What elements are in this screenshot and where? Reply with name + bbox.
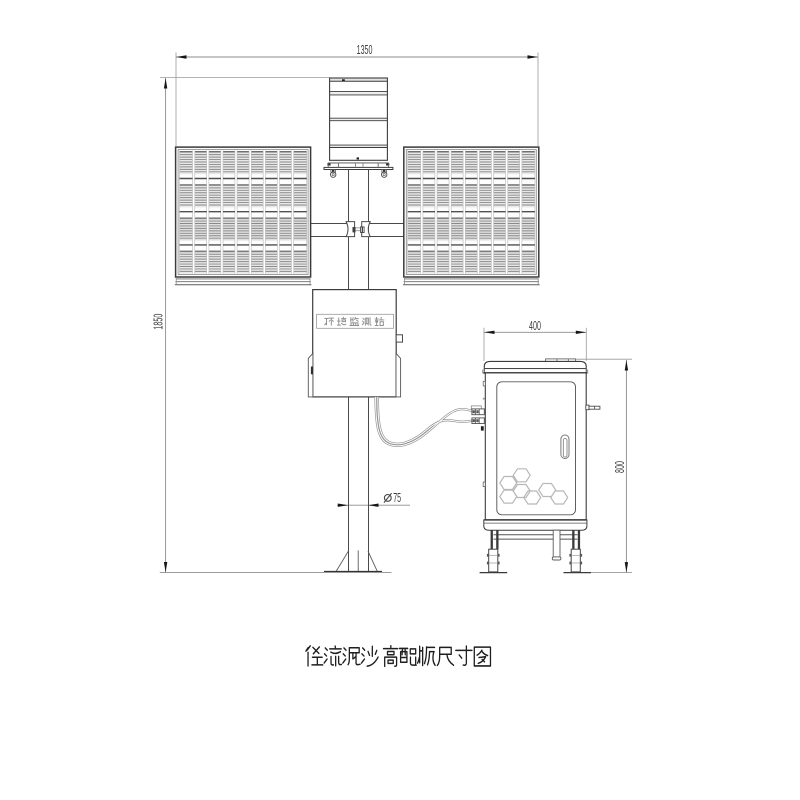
svg-text:400: 400 <box>529 320 541 334</box>
svg-text:1850: 1850 <box>153 314 167 330</box>
svg-text:800: 800 <box>614 461 628 473</box>
svg-text:75: 75 <box>393 492 401 506</box>
svg-text:1350: 1350 <box>357 44 373 58</box>
